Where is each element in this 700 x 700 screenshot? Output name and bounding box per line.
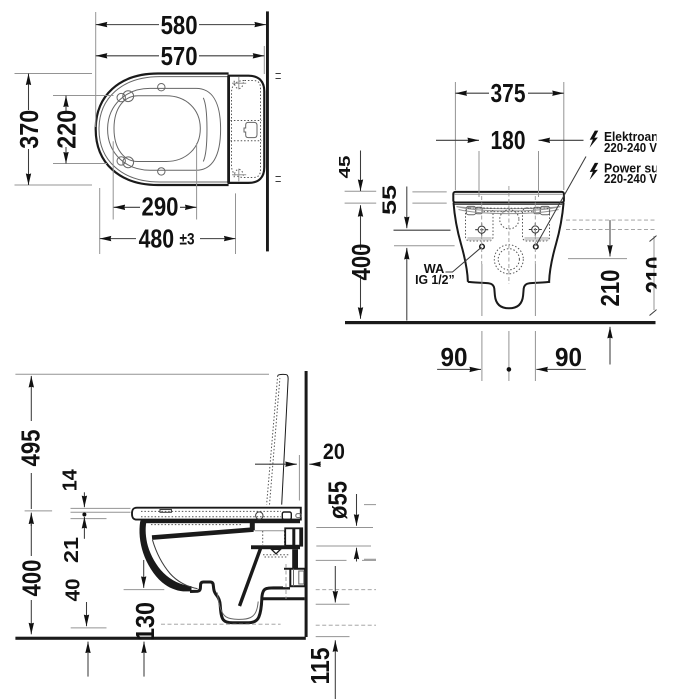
svg-text:45: 45: [337, 155, 354, 178]
svg-text:180: 180: [491, 125, 526, 155]
svg-text:375: 375: [491, 78, 526, 108]
svg-text:21: 21: [61, 537, 83, 563]
svg-text:220: 220: [52, 110, 82, 149]
svg-text:20: 20: [323, 439, 345, 464]
svg-text:290: 290: [142, 191, 179, 221]
svg-text:115: 115: [305, 648, 335, 685]
svg-text:IG 1/2”: IG 1/2”: [415, 272, 455, 287]
svg-text:14: 14: [60, 468, 82, 491]
svg-text:480: 480: [139, 224, 175, 254]
svg-text:40: 40: [63, 579, 85, 602]
svg-text:400: 400: [17, 560, 47, 597]
svg-text:130: 130: [130, 602, 160, 641]
svg-text:580: 580: [161, 10, 198, 40]
svg-text:90: 90: [441, 342, 468, 372]
svg-text:370: 370: [14, 110, 44, 149]
svg-text:90: 90: [555, 342, 582, 372]
svg-text:495: 495: [16, 430, 46, 467]
svg-text:55: 55: [380, 184, 401, 215]
svg-text:220-240 V: 220-240 V: [604, 140, 657, 155]
svg-text:220-240 V: 220-240 V: [604, 171, 657, 186]
svg-text:400: 400: [346, 244, 376, 281]
svg-text:570: 570: [161, 41, 198, 71]
svg-text:±3: ±3: [180, 230, 195, 249]
svg-text:ø55: ø55: [323, 481, 353, 519]
svg-text:210: 210: [595, 270, 625, 307]
